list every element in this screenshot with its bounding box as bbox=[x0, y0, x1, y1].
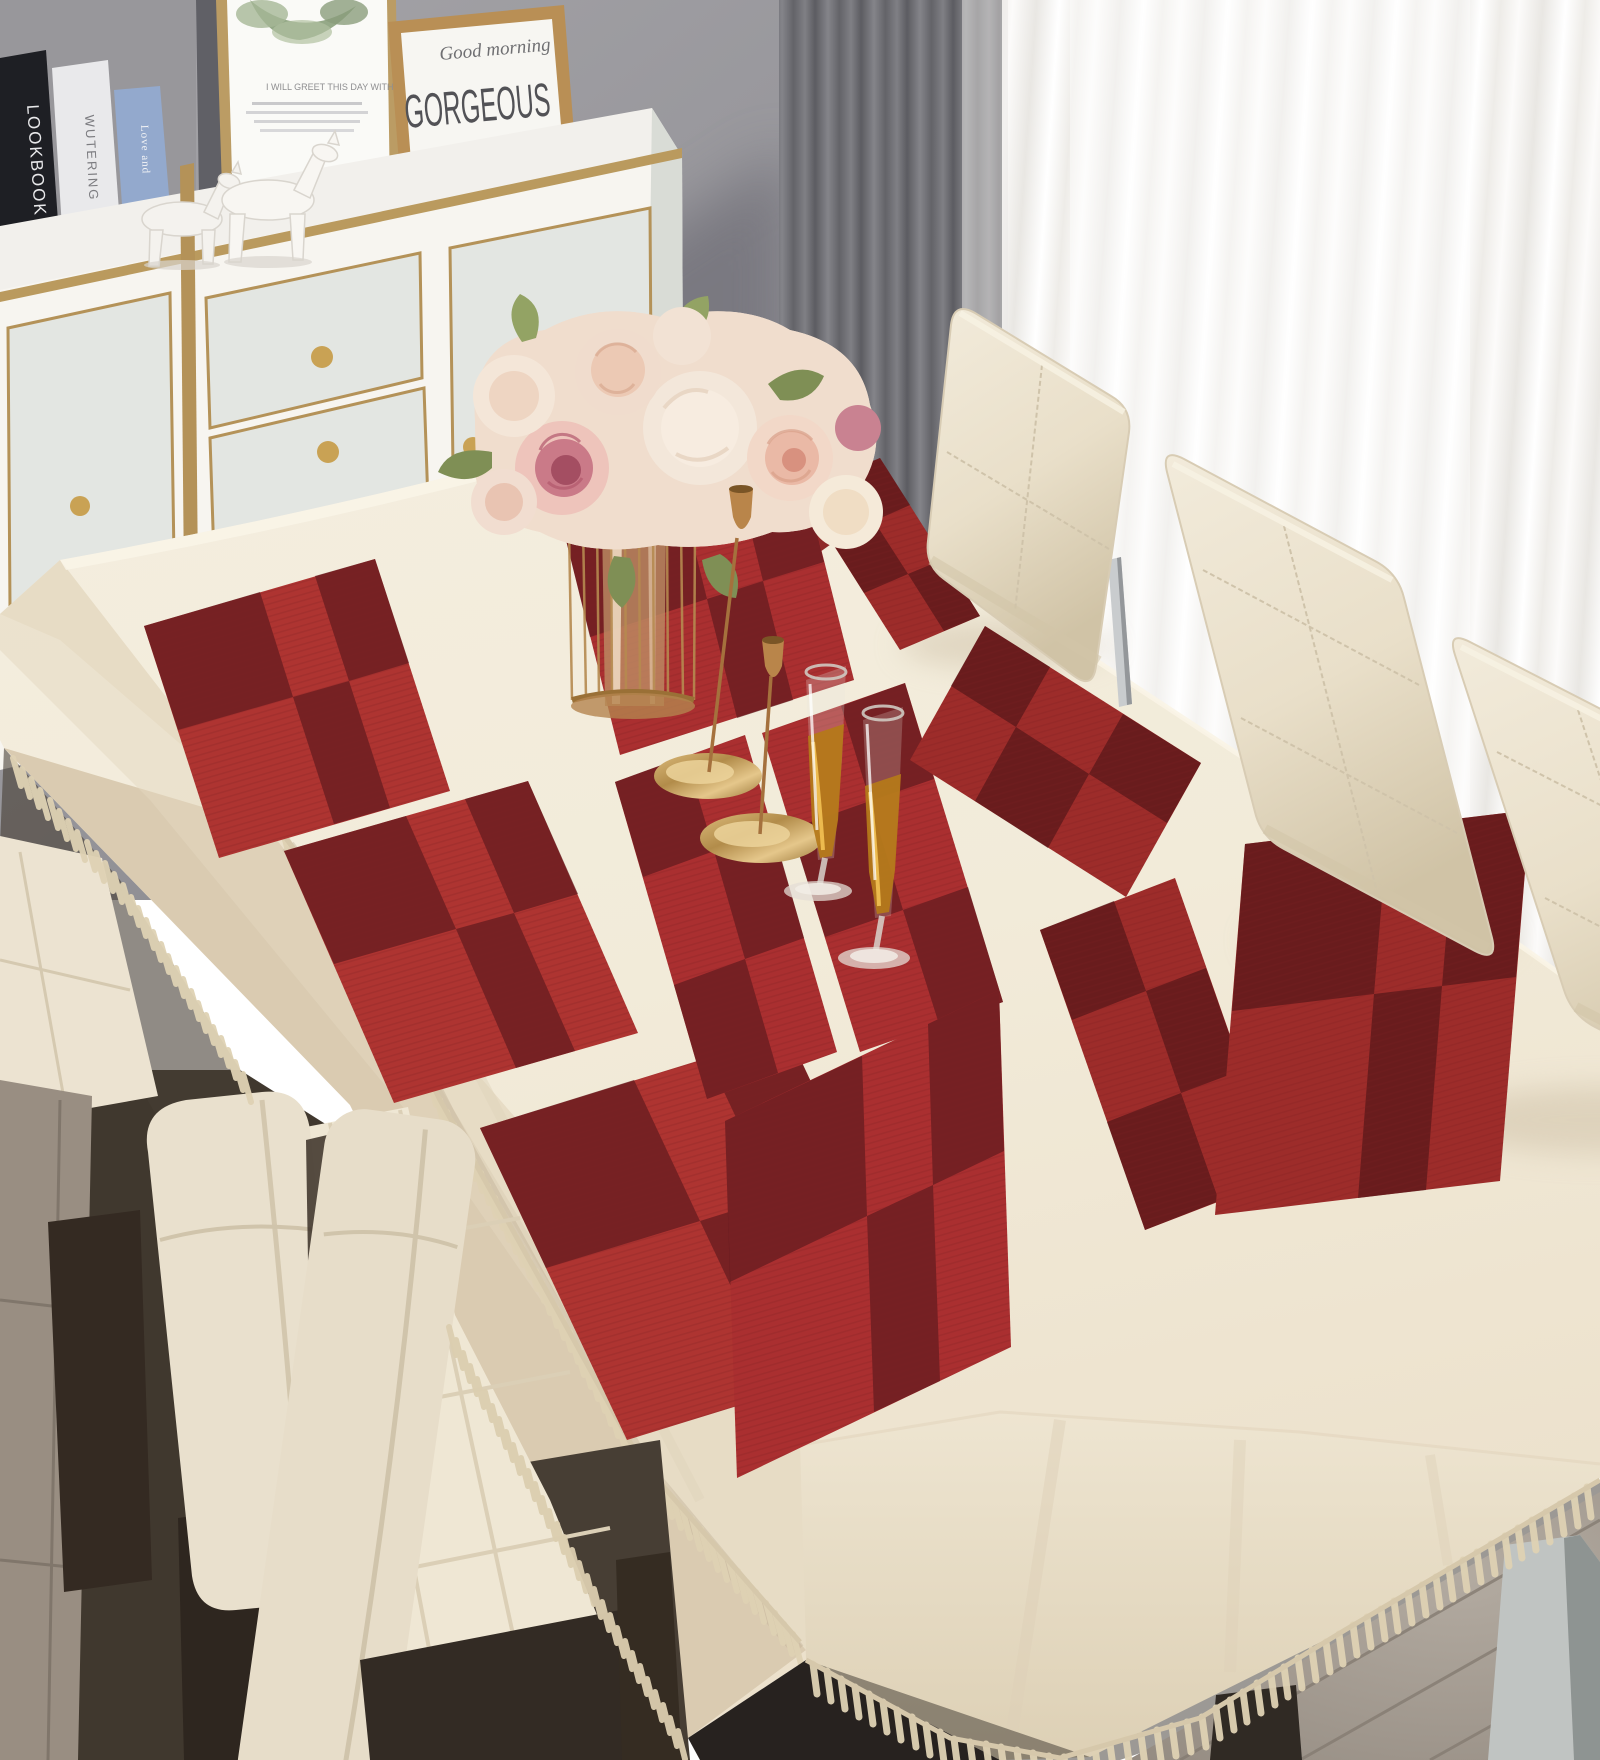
svg-text:I WILL GREET THIS DAY WITH LO: I WILL GREET THIS DAY WITH LO bbox=[266, 82, 408, 92]
svg-text:Love and: Love and bbox=[138, 125, 152, 175]
